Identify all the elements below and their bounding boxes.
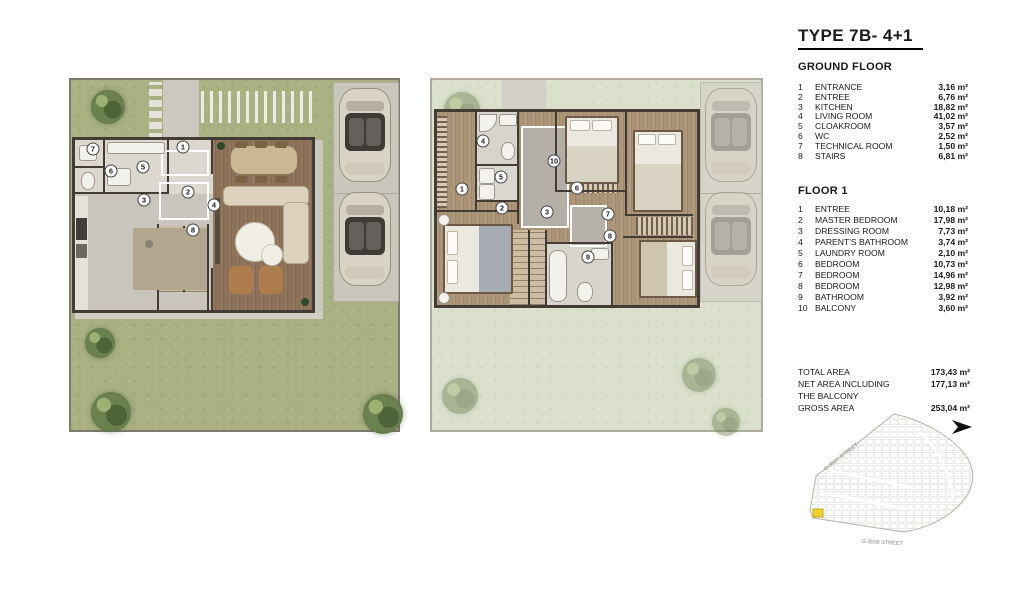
ground-floor-heading: GROUND FLOOR <box>798 61 892 73</box>
room-number: 6 <box>798 259 811 269</box>
ground-floor-house <box>75 140 312 310</box>
dining-chair <box>275 141 287 148</box>
wall <box>437 210 517 212</box>
car-hood <box>345 162 385 175</box>
room-name: ENTREE <box>815 92 934 102</box>
car <box>705 192 757 286</box>
room-name: MASTER BEDROOM <box>815 215 930 225</box>
floor-1-heading: FLOOR 1 <box>798 185 848 197</box>
pillow <box>447 231 458 255</box>
room-name: DRESSING ROOM <box>815 226 934 236</box>
wall <box>75 166 103 168</box>
tree <box>85 328 115 358</box>
car-hood <box>711 162 751 175</box>
room-area: 7,73 m² <box>938 226 968 236</box>
room-area: 41,02 m² <box>934 111 968 121</box>
dining-table <box>231 146 297 174</box>
total-row: NET AREA INCLUDING 177,13 m² <box>798 378 970 390</box>
car-seat <box>732 118 747 146</box>
first-floor-plan: 12345678910 <box>430 78 763 432</box>
room-row: 9 BATHROOM 3,92 m² <box>798 291 968 302</box>
dining-chair <box>275 176 287 183</box>
room-number: 3 <box>798 102 811 112</box>
car-seat <box>366 222 381 250</box>
pillow <box>682 246 693 266</box>
total-label: NET AREA INCLUDING <box>798 379 931 389</box>
wardrobe <box>636 217 693 235</box>
sink <box>499 114 517 126</box>
pillow <box>447 260 458 284</box>
room-number: 3 <box>798 226 811 236</box>
washing-machine <box>479 168 495 184</box>
pillow <box>592 120 612 131</box>
cloakroom-cabinet <box>107 142 165 154</box>
room-name: PARENT'S BATHROOM <box>815 237 934 247</box>
room-area: 3,92 m² <box>938 292 968 302</box>
blanket <box>567 146 617 182</box>
dining-chair <box>255 176 267 183</box>
blanket <box>635 164 681 210</box>
toilet <box>501 142 515 160</box>
entrance-walkway <box>163 80 199 142</box>
room-name: LIVING ROOM <box>815 111 930 121</box>
nightstand <box>438 214 450 226</box>
tree <box>712 408 740 436</box>
room-number: 5 <box>798 248 811 258</box>
tree <box>91 90 125 124</box>
room-row: 6 BEDROOM 10,73 m² <box>798 258 968 269</box>
room-row: 2 ENTREE 6,76 m² <box>798 92 968 102</box>
room-area: 3,74 m² <box>938 237 968 247</box>
wall <box>555 112 557 192</box>
room-area: 1,50 m² <box>938 141 968 151</box>
room-area: 10,18 m² <box>934 204 968 214</box>
room-name: BEDROOM <box>815 281 930 291</box>
wall <box>477 200 517 202</box>
wall <box>103 140 105 194</box>
wall <box>211 268 213 310</box>
plant <box>301 298 309 306</box>
room-area: 6,76 m² <box>938 92 968 102</box>
oven <box>76 218 87 240</box>
room-name: ENTRANCE <box>815 82 934 92</box>
tv-console <box>215 198 220 264</box>
cloakroom-bench <box>107 168 131 186</box>
room-area: 2,52 m² <box>938 131 968 141</box>
room-number: 8 <box>798 151 811 161</box>
car-windshield <box>712 205 750 215</box>
room-name: STAIRS <box>815 151 934 161</box>
street-label-bottom: G-3006 STREET <box>861 539 903 547</box>
room-area: 3,57 m² <box>938 121 968 131</box>
room-number: 9 <box>798 292 811 302</box>
room-row: 8 STAIRS 6,81 m² <box>798 151 968 161</box>
car-windshield <box>712 101 750 111</box>
entrance-highlight-box <box>161 150 209 176</box>
room-name: CLOAKROOM <box>815 121 934 131</box>
room-name: BALCONY <box>815 303 934 313</box>
room-area: 3,16 m² <box>938 82 968 92</box>
car-seat <box>732 222 747 250</box>
total-value: 177,13 m² <box>931 379 970 389</box>
room-row: 6 WC 2,52 m² <box>798 131 968 141</box>
car <box>339 88 391 182</box>
room-name: BATHROOM <box>815 292 934 302</box>
room-row: 10 BALCONY 3,60 m² <box>798 302 968 313</box>
car-cabin <box>345 113 385 151</box>
wall <box>555 190 625 192</box>
island-decor <box>145 240 153 248</box>
room-row: 3 KITCHEN 18,82 m² <box>798 102 968 112</box>
car-seat <box>715 118 730 146</box>
room-number: 6 <box>798 131 811 141</box>
car-seat <box>715 222 730 250</box>
room-number: 7 <box>798 141 811 151</box>
wall <box>611 238 613 305</box>
room-name: WC <box>815 131 934 141</box>
pillow <box>638 134 656 145</box>
toilet <box>577 282 593 302</box>
toilet <box>81 172 95 190</box>
room-area: 12,98 m² <box>934 281 968 291</box>
highlighted-unit <box>813 509 823 517</box>
car-cabin <box>345 217 385 255</box>
washer <box>79 145 97 161</box>
blanket <box>479 226 511 292</box>
wall <box>625 214 693 216</box>
room-row: 5 LAUNDRY ROOM 2,10 m² <box>798 247 968 258</box>
dining-chair <box>235 176 247 183</box>
floorplan-sheet: 12345678 <box>0 0 1024 600</box>
void-area <box>521 126 569 228</box>
ground-floor-plan: 12345678 <box>69 78 400 432</box>
room-name: KITCHEN <box>815 102 930 112</box>
room-row: 4 LIVING ROOM 41,02 m² <box>798 111 968 121</box>
bathtub <box>549 250 567 302</box>
balcony-area <box>570 205 607 247</box>
room-name: ENTREE <box>815 204 930 214</box>
ground-floor-room-list: 1 ENTRANCE 3,16 m² 2 ENTREE 6,76 m² 3 KI… <box>798 82 968 160</box>
room-area: 14,96 m² <box>934 270 968 280</box>
stepping-stones <box>149 82 162 140</box>
pillow <box>658 134 676 145</box>
site-map: G-3007 STREET G-3006 STREET <box>802 406 982 564</box>
room-row: 4 PARENT'S BATHROOM 3,74 m² <box>798 236 968 247</box>
sofa <box>283 202 309 264</box>
total-value: 173,43 m² <box>931 367 970 377</box>
entree-highlight-box <box>159 182 209 220</box>
total-row: THE BALCONY <box>798 390 970 402</box>
room-area: 3,60 m² <box>938 303 968 313</box>
car-cabin <box>711 113 751 151</box>
car-seat <box>349 222 364 250</box>
room-row: 7 TECHNICAL ROOM 1,50 m² <box>798 141 968 151</box>
room-number: 2 <box>798 92 811 102</box>
floor-1-room-list: 1 ENTREE 10,18 m² 2 MASTER BEDROOM 17,98… <box>798 203 968 313</box>
wall <box>517 112 519 224</box>
room-area: 10,73 m² <box>934 259 968 269</box>
wall <box>545 242 611 244</box>
appliance <box>76 244 87 258</box>
room-area: 17,98 m² <box>934 215 968 225</box>
room-number: 5 <box>798 121 811 131</box>
room-area: 18,82 m² <box>934 102 968 112</box>
room-number: 10 <box>798 303 811 313</box>
blanket <box>641 242 667 296</box>
wall <box>207 224 209 310</box>
car-seat <box>349 118 364 146</box>
room-row: 2 MASTER BEDROOM 17,98 m² <box>798 214 968 225</box>
wall <box>475 112 477 210</box>
car-hood <box>711 266 751 279</box>
north-arrow-icon <box>952 420 972 434</box>
room-number: 4 <box>798 111 811 121</box>
pillow <box>570 120 590 131</box>
room-number: 4 <box>798 237 811 247</box>
armchair <box>229 266 253 294</box>
room-name: BEDROOM <box>815 259 930 269</box>
dining-chair <box>235 141 247 148</box>
room-name: BEDROOM <box>815 270 930 280</box>
bed <box>565 116 619 184</box>
room-row: 1 ENTRANCE 3,16 m² <box>798 82 968 92</box>
room-name: TECHNICAL ROOM <box>815 141 934 151</box>
wall <box>75 192 169 194</box>
sink <box>591 248 609 260</box>
master-bed <box>443 224 513 294</box>
car <box>705 88 757 182</box>
wall <box>211 140 213 174</box>
wall <box>623 236 693 238</box>
car <box>339 192 391 286</box>
tree <box>442 378 478 414</box>
room-number: 8 <box>798 281 811 291</box>
room-row: 5 CLOAKROOM 3,57 m² <box>798 121 968 131</box>
wardrobe <box>437 116 447 208</box>
bed <box>639 240 697 298</box>
entrance-walkway <box>502 80 546 114</box>
car-seat <box>366 118 381 146</box>
page-title: TYPE 7B- 4+1 <box>798 26 923 50</box>
kitchen-island <box>133 228 207 290</box>
dining-chair <box>255 141 267 148</box>
room-row: 7 BEDROOM 14,96 m² <box>798 269 968 280</box>
pergola-stripes <box>201 91 318 123</box>
room-number: 2 <box>798 215 811 225</box>
total-row: TOTAL AREA 173,43 m² <box>798 366 970 378</box>
coffee-table <box>261 244 283 266</box>
wall <box>625 112 627 214</box>
dryer <box>479 184 495 200</box>
stairs <box>510 230 545 305</box>
plant <box>217 142 225 150</box>
side-path <box>315 140 323 316</box>
room-area: 6,81 m² <box>938 151 968 161</box>
total-label: THE BALCONY <box>798 391 970 401</box>
room-name: LAUNDRY ROOM <box>815 248 934 258</box>
car-cabin <box>711 217 751 255</box>
car-hood <box>345 266 385 279</box>
tree <box>363 394 403 434</box>
first-floor-house <box>437 112 697 305</box>
room-row: 1 ENTREE 10,18 m² <box>798 203 968 214</box>
total-label: TOTAL AREA <box>798 367 931 377</box>
armchair <box>259 266 283 294</box>
room-area: 2,10 m² <box>938 248 968 258</box>
room-row: 3 DRESSING ROOM 7,73 m² <box>798 225 968 236</box>
tree <box>682 358 716 392</box>
stairs-rail <box>528 230 530 305</box>
room-number: 1 <box>798 82 811 92</box>
nightstand <box>438 292 450 304</box>
pillow <box>682 270 693 290</box>
room-number: 1 <box>798 204 811 214</box>
bed <box>633 130 683 212</box>
car-windshield <box>346 101 384 111</box>
room-row: 8 BEDROOM 12,98 m² <box>798 280 968 291</box>
wall <box>477 164 517 166</box>
room-number: 7 <box>798 270 811 280</box>
car-windshield <box>346 205 384 215</box>
tree <box>91 392 131 432</box>
rear-path <box>75 313 323 319</box>
